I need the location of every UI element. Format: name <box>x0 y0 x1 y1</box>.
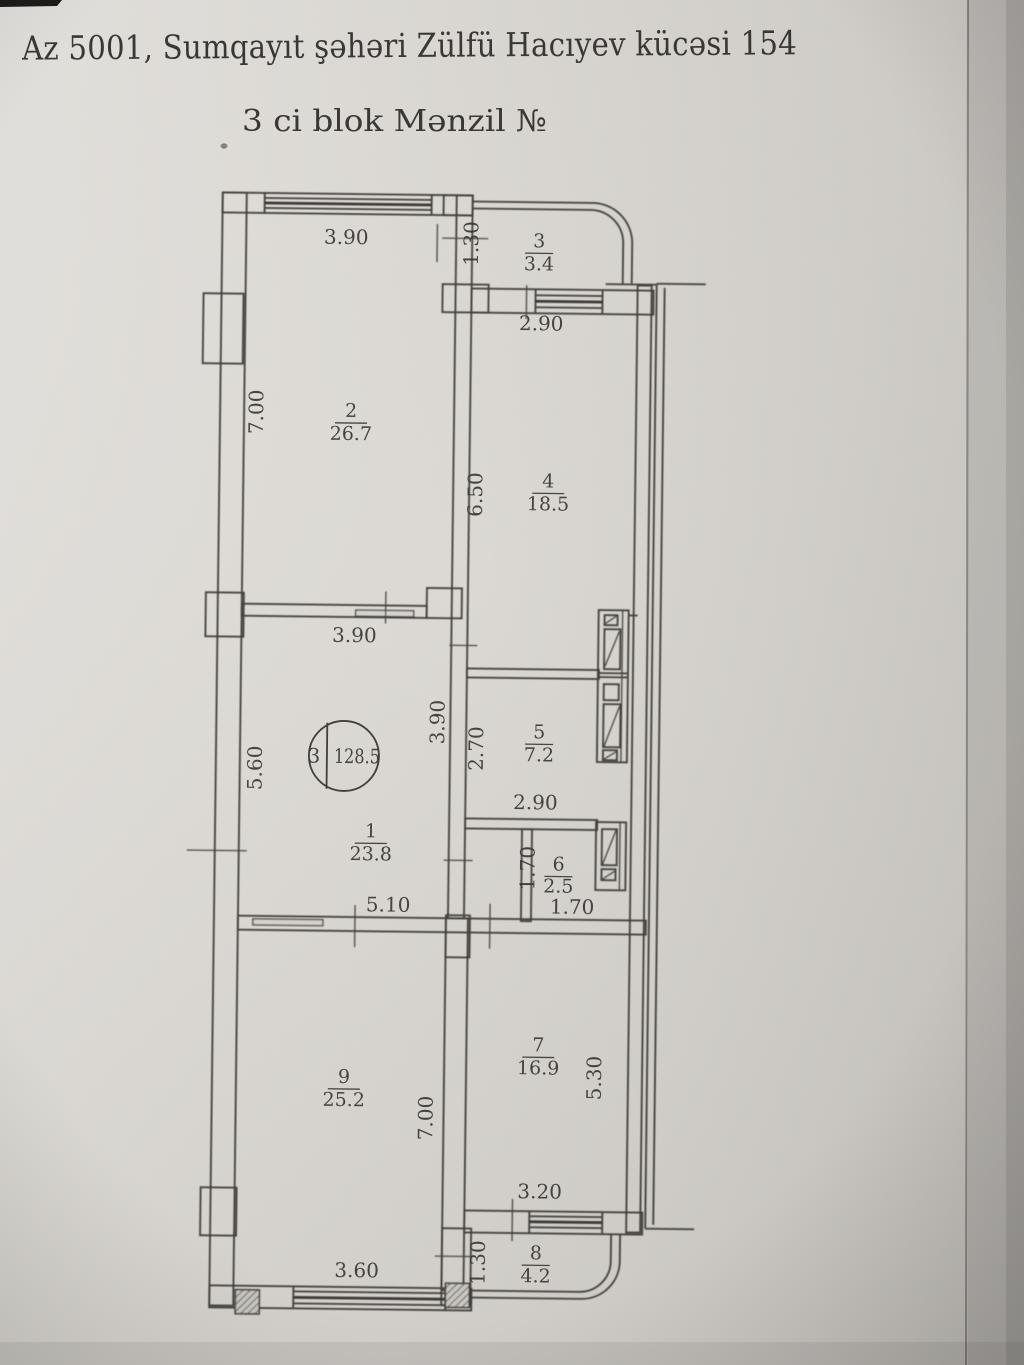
vignette <box>0 0 1024 1365</box>
scanned-floor-plan-photo: Az 5001, Sumqayıt şəhəri Zülfü Hacıyev k… <box>0 0 1024 1365</box>
photo-artifacts <box>0 0 1024 1365</box>
floor-plan-svg: Az 5001, Sumqayıt şəhəri Zülfü Hacıyev k… <box>0 0 1024 1365</box>
